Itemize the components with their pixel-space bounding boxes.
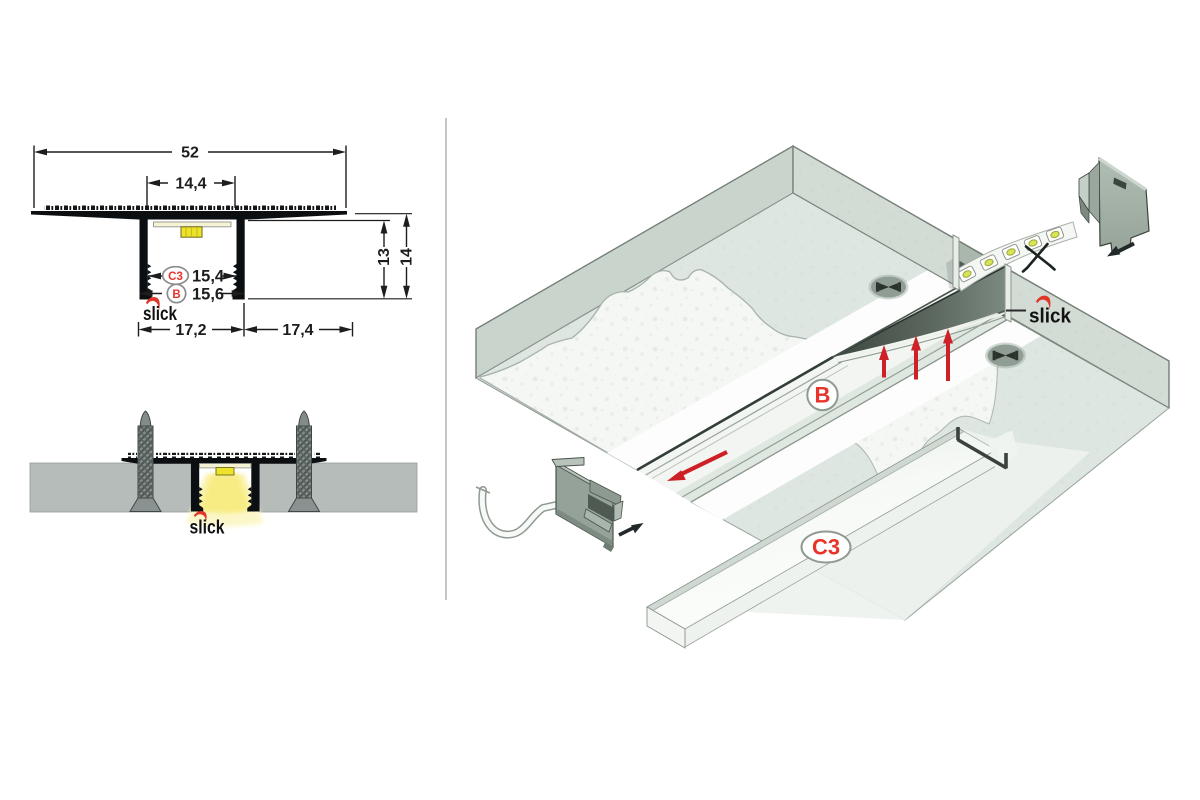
svg-text:17,4: 17,4 [282, 322, 313, 339]
svg-text:slick: slick [143, 304, 177, 325]
svg-text:slick: slick [190, 518, 225, 539]
svg-text:13: 13 [376, 248, 393, 266]
svg-text:15,6: 15,6 [192, 286, 224, 304]
svg-text:B: B [815, 383, 831, 408]
svg-text:52: 52 [181, 145, 199, 162]
svg-text:B: B [172, 289, 180, 301]
svg-text:slick: slick [1029, 305, 1072, 328]
svg-text:17,2: 17,2 [175, 322, 206, 339]
svg-text:15,4: 15,4 [192, 268, 225, 286]
svg-text:14: 14 [399, 248, 416, 266]
svg-text:C3: C3 [812, 535, 840, 560]
svg-text:14,4: 14,4 [175, 176, 206, 193]
svg-text:C3: C3 [168, 271, 183, 283]
